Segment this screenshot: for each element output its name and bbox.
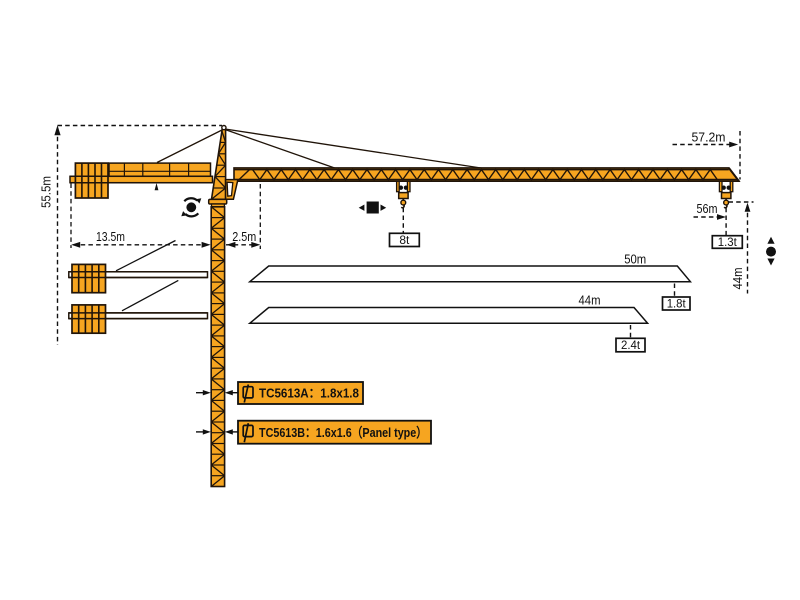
svg-text:56m: 56m [697, 202, 718, 216]
svg-text:1.3t: 1.3t [718, 235, 738, 249]
svg-text:TC5613B：1.6x1.6（Panel type）: TC5613B：1.6x1.6（Panel type） [259, 425, 427, 440]
svg-text:1.8t: 1.8t [667, 297, 687, 311]
svg-text:44m: 44m [579, 294, 601, 308]
svg-text:8t: 8t [399, 233, 410, 247]
svg-text:2.5m: 2.5m [232, 230, 256, 244]
svg-text:55.5m: 55.5m [40, 176, 54, 208]
svg-text:44m: 44m [731, 268, 745, 290]
svg-text:2.4t: 2.4t [621, 338, 641, 352]
svg-text:TC5613A：1.8x1.8: TC5613A：1.8x1.8 [259, 386, 359, 401]
svg-text:13.5m: 13.5m [96, 230, 125, 244]
svg-text:50m: 50m [624, 253, 646, 267]
svg-text:57.2m: 57.2m [692, 130, 726, 144]
